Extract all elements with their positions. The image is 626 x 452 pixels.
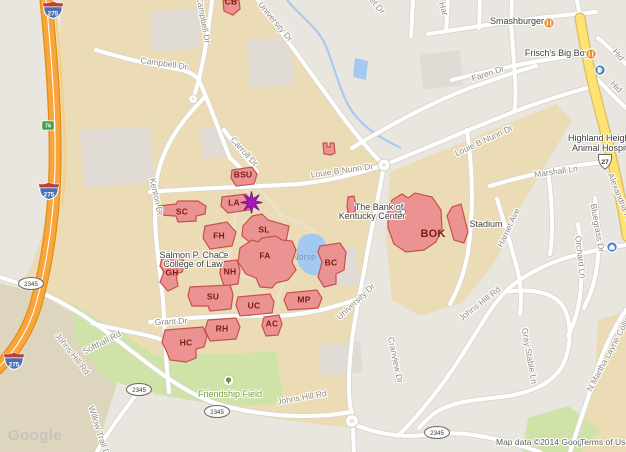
poi-label-chase-law-2: College of Law: [163, 260, 223, 270]
road-label-grant-dr: Grant Dr: [154, 316, 187, 327]
restaurant-icon-smashburger[interactable]: [543, 17, 555, 29]
building-fa[interactable]: [238, 236, 296, 288]
building-label-bok: BOK: [420, 228, 445, 240]
building-label-bsu: BSU: [234, 170, 253, 179]
building-label-mp: MP: [297, 295, 310, 304]
building-label-uc: UC: [248, 301, 261, 310]
route-2345-shield-c: 2345: [203, 404, 231, 419]
svg-text:275: 275: [48, 10, 59, 17]
svg-text:2345: 2345: [24, 281, 38, 288]
interstate-275-shield-mid: 275: [38, 181, 60, 200]
svg-text:275: 275: [9, 361, 20, 368]
svg-text:275: 275: [44, 191, 55, 198]
svg-text:2345: 2345: [132, 387, 146, 394]
svg-text:2345: 2345: [210, 409, 224, 416]
exit-badge-76: 76: [41, 120, 55, 131]
building-label-cb: CB: [225, 0, 238, 7]
poi-dot-bok[interactable]: [399, 208, 407, 216]
terms-of-use-link[interactable]: Terms of Use: [580, 438, 626, 447]
building-label-su: SU: [207, 292, 219, 301]
poi-label-smashburger: Smashburger: [490, 17, 544, 27]
route-2345-shield-d: 2345: [423, 425, 451, 440]
building-label-fh: FH: [213, 231, 225, 240]
building-label-stadium: Stadium: [469, 220, 502, 230]
poi-label-bank-of-kentucky-2: Kentucky Center: [339, 212, 406, 222]
poi-label-friendship-field: Friendship Field: [198, 390, 262, 400]
poi-icon-blue[interactable]: [606, 241, 618, 253]
route-2345-shield-b: 2345: [125, 382, 153, 397]
building-small-north[interactable]: [323, 143, 335, 155]
svg-text:2345: 2345: [430, 430, 444, 437]
map-canvas[interactable]: Loch Norse CB BSU SC LA FH SL FA NH GH B…: [0, 0, 626, 452]
poi-label-frischs-big-boy: Frisch's Big Boy: [525, 49, 589, 59]
park-tree-icon[interactable]: [222, 374, 235, 387]
building-label-rh: RH: [216, 324, 229, 333]
poi-dot-chase-law[interactable]: [218, 251, 226, 259]
map-data-attribution: Map data ©2014 Google: [496, 438, 589, 447]
svg-text:76: 76: [45, 124, 51, 130]
svg-text:27: 27: [601, 159, 609, 166]
building-stadium[interactable]: [447, 204, 468, 243]
restaurant-icon-frischs[interactable]: [585, 48, 597, 60]
building-label-fa: FA: [259, 251, 270, 260]
us-27-shield: 27: [597, 153, 613, 170]
gas-station-icon[interactable]: [594, 64, 606, 76]
building-label-bc: BC: [325, 258, 338, 267]
building-label-sl: SL: [258, 225, 269, 234]
star-marker[interactable]: [238, 189, 265, 216]
building-label-sc: SC: [176, 207, 188, 216]
building-label-ac: AC: [266, 319, 279, 328]
interstate-275-shield-south: 275: [3, 351, 25, 370]
interstate-275-shield-north: 275: [42, 0, 64, 19]
building-label-nh: NH: [224, 267, 237, 276]
google-logo[interactable]: Google: [8, 428, 62, 445]
building-label-hc: HC: [180, 338, 193, 347]
route-2345-shield-a: 2345: [17, 276, 45, 291]
